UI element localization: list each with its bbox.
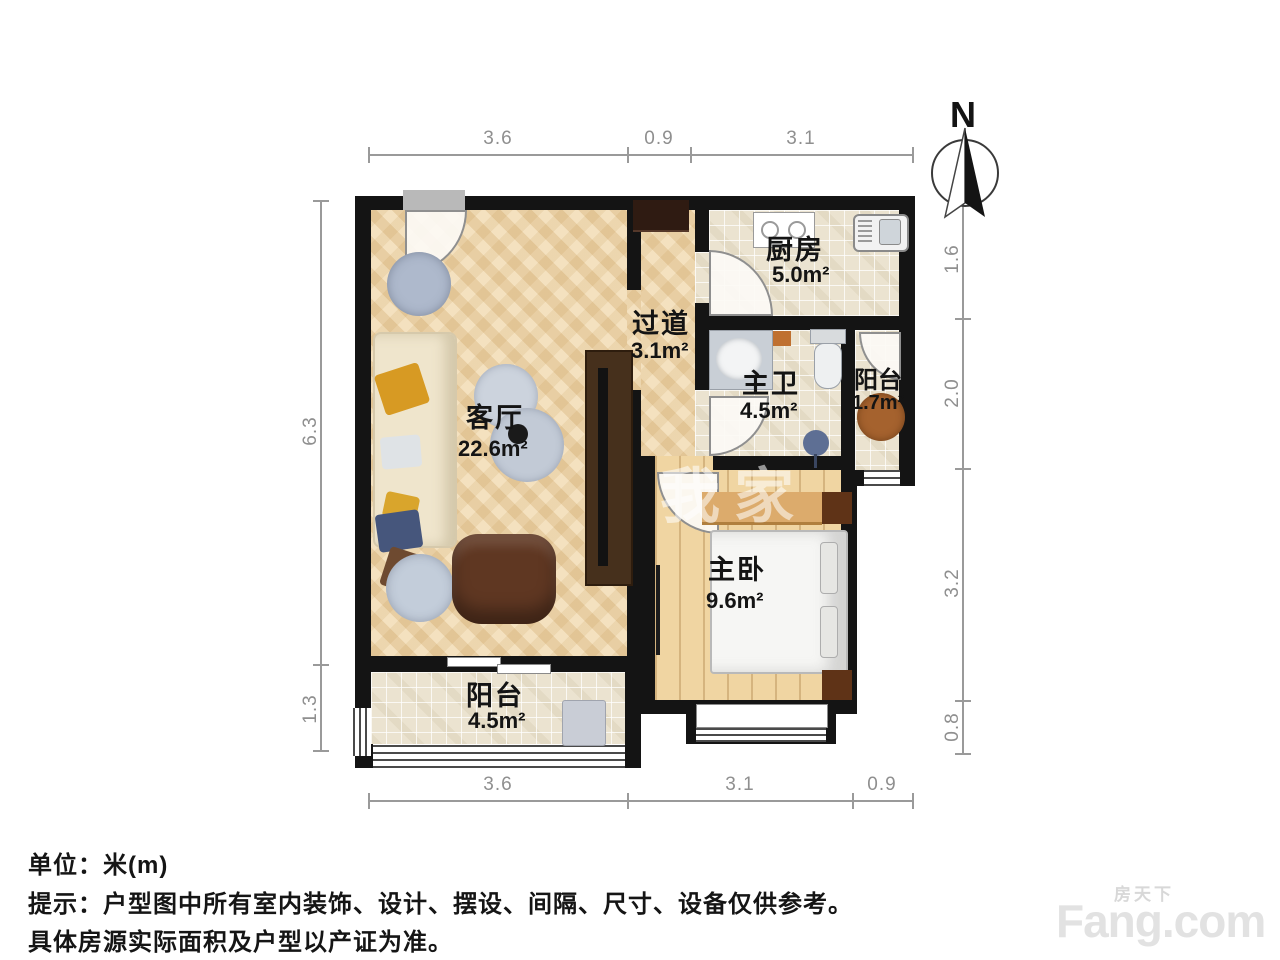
dim-bottom-1: 3.6	[468, 774, 528, 796]
dim-top-1: 3.6	[468, 128, 528, 150]
bed-pillow-1	[820, 542, 838, 594]
nightstand-bottom	[822, 670, 852, 700]
toilet-tank	[810, 329, 846, 344]
round-rug-top	[387, 252, 451, 316]
shower-stand	[814, 454, 817, 468]
dim-right-3: 3.2	[942, 553, 964, 613]
unit-note: 单位：米(m)	[28, 845, 168, 880]
bathroom-stool	[773, 331, 791, 346]
balcony-south-window-bottom	[373, 744, 625, 768]
balcony-east-area: 1.7m²	[852, 392, 904, 415]
bed-pillow-2	[820, 606, 838, 658]
bedroom-area: 9.6m²	[706, 588, 763, 614]
dim-tick	[955, 468, 971, 470]
dim-tick	[313, 664, 329, 666]
brand-en-label: Fang.com	[1056, 894, 1265, 948]
living-room-area: 22.6m²	[458, 436, 528, 462]
round-rug-bottom	[386, 554, 454, 622]
dim-bottom-2: 3.1	[710, 774, 770, 796]
living-room-label: 客厅	[466, 396, 524, 435]
bathroom-door-gap	[695, 390, 709, 456]
bedroom-baywindow-sill	[696, 728, 826, 742]
hallway-shoe-cabinet	[633, 200, 689, 232]
bedroom-curtain-rail	[656, 565, 660, 655]
tv-cabinet	[585, 350, 633, 586]
bedroom-label: 主卧	[708, 548, 766, 587]
kitchen-sink-basin	[879, 219, 901, 245]
dim-tick	[313, 200, 329, 202]
bedroom-baywindow-glass	[696, 704, 828, 728]
disclaimer-line-1: 提示：户型图中所有室内装饰、设计、摆设、间隔、尺寸、设备仅供参考。	[28, 884, 853, 919]
dim-tick	[690, 147, 692, 163]
sofa-pillow-navy	[375, 509, 424, 553]
sofa-pillow-white	[380, 434, 423, 469]
toilet-bowl	[814, 343, 842, 389]
kitchen-door-gap	[695, 252, 709, 303]
balcony-east-label: 阳台	[854, 360, 902, 395]
dim-bottom-3: 0.9	[852, 774, 912, 796]
dim-tick	[912, 147, 914, 163]
dim-right-1: 1.6	[942, 229, 964, 289]
dim-tick	[955, 318, 971, 320]
dim-right-4: 0.8	[942, 697, 964, 757]
dim-tick	[368, 147, 370, 163]
floorplan: 客厅 22.6m² 过道 3.1m² 厨房 5.0m² 主卫 4.5m² 阳台 …	[0, 0, 1280, 960]
nightstand-top	[822, 492, 852, 524]
dim-left-1: 6.3	[300, 401, 322, 461]
dim-tick	[368, 793, 370, 809]
balcony-south-area: 4.5m²	[468, 708, 525, 734]
dim-top-3: 3.1	[771, 128, 831, 150]
north-arrow-icon	[920, 125, 1010, 225]
tv-screen	[598, 368, 608, 566]
dim-tick	[313, 750, 329, 752]
dim-right-2: 2.0	[942, 363, 964, 423]
living-balcony-slider-1	[447, 657, 501, 667]
kitchen-sink-drain	[858, 220, 872, 242]
hallway-area: 3.1m²	[631, 338, 688, 364]
washing-machine	[562, 700, 606, 746]
dim-left-2: 1.3	[300, 679, 322, 739]
bathroom-area: 4.5m²	[740, 398, 797, 424]
dim-line-top	[368, 154, 914, 156]
balcony-east-window	[864, 470, 900, 486]
dim-line-bottom	[368, 800, 914, 802]
dim-line-left	[320, 200, 322, 752]
lounge-chair	[452, 534, 556, 624]
dim-tick	[912, 793, 914, 809]
balcony-south-window-left	[353, 708, 371, 756]
dim-top-2: 0.9	[629, 128, 689, 150]
center-watermark: 我家	[660, 448, 808, 535]
entry-door-mat	[403, 190, 465, 210]
disclaimer-line-2: 具体房源实际面积及户型以产证为准。	[28, 922, 453, 957]
brand-watermark: 房天下 Fang.com	[1056, 882, 1266, 952]
bathroom-label: 主卫	[742, 362, 800, 401]
dim-tick	[627, 793, 629, 809]
living-balcony-slider-2	[497, 664, 551, 674]
hallway-label: 过道	[632, 302, 690, 341]
kitchen-area: 5.0m²	[772, 262, 829, 288]
